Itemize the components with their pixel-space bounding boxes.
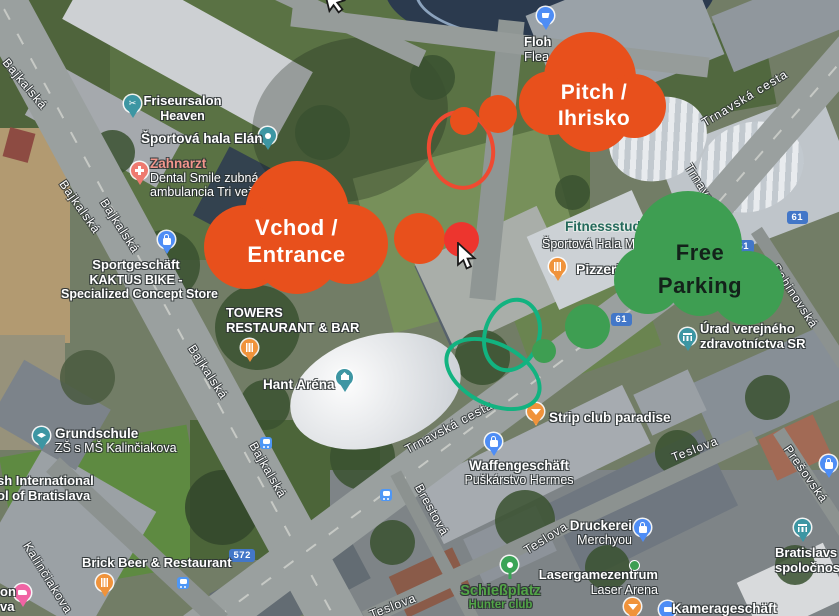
flea-market-pin[interactable] — [537, 7, 554, 24]
annotation-dot-orange — [394, 213, 445, 264]
bed-icon — [18, 590, 27, 595]
arena-pin[interactable] — [336, 369, 353, 386]
annotation-dot-green — [565, 304, 610, 349]
tree — [295, 105, 350, 160]
poi-label-sportova-hala[interactable]: Športová hala Elán — [141, 131, 263, 146]
scissors-icon: ✂ — [129, 99, 137, 108]
building — [633, 369, 706, 435]
shopping-bag-icon — [490, 440, 498, 447]
fork-knife-icon — [246, 343, 253, 352]
pizzeria-pin[interactable] — [549, 258, 566, 275]
annotation-dot-orange — [450, 107, 478, 135]
poi-label-waffengeschaeft[interactable]: Waffengeschäft Puškárstvo Hermes — [445, 458, 593, 487]
dentist-pin[interactable] — [131, 162, 148, 179]
school-pin[interactable] — [33, 427, 50, 444]
poi-label-urad[interactable]: Úrad verejného zdravotníctva SR — [700, 322, 805, 351]
annotation-dot-orange — [479, 95, 517, 133]
tree — [60, 350, 115, 405]
gun-shop-pin[interactable] — [485, 433, 502, 450]
poi-label-lasergame[interactable]: Lasergamezentrum Laser Arena — [537, 568, 658, 597]
poi-label-kamera[interactable]: Kamerageschäft — [672, 601, 777, 616]
poi-label-intl-school[interactable]: sh International ol of Bratislava — [0, 474, 94, 503]
poi-label-kaktus-bike[interactable]: Sportgeschäft KAKTUS BIKE - Specialized … — [61, 258, 211, 301]
poi-label-towers[interactable]: TOWERS RESTAURANT & BAR — [226, 306, 359, 335]
institution-pin[interactable] — [794, 519, 811, 536]
cocktail-icon — [628, 604, 638, 610]
route-badge-572: 572 — [229, 549, 255, 562]
shopping-cart-icon — [542, 13, 550, 18]
bank-columns-icon — [683, 333, 692, 341]
shopping-bag-icon — [639, 526, 647, 533]
cloud-text-pitch: Pitch / Ihrisko — [519, 80, 669, 132]
restaurant-pin[interactable] — [96, 574, 113, 591]
tree — [555, 175, 590, 210]
shopping-bag-icon — [825, 462, 833, 469]
shop-pin[interactable] — [820, 455, 837, 472]
camera-icon — [664, 607, 672, 612]
map-viewport[interactable]: Bajkalská Bajkalská Bajkalská Bajkalská … — [0, 0, 839, 616]
medical-cross-icon — [135, 166, 144, 175]
poi-label-brick-beer[interactable]: Brick Beer & Restaurant — [82, 556, 232, 571]
poi-label-druckerei[interactable]: Druckerei Merchyou — [552, 518, 632, 547]
cocktail-icon — [531, 409, 541, 415]
transit-stop-icon[interactable] — [177, 577, 189, 589]
annotation-cloud-pitch: Pitch / Ihrisko — [519, 32, 669, 154]
poi-label-pension[interactable]: on va — [0, 585, 16, 614]
bike-shop-pin[interactable] — [158, 231, 175, 248]
graduation-cap-icon — [37, 433, 46, 439]
cloud-text-parking: Free Parking — [612, 236, 788, 302]
annotation-cloud-entrance: Vchod / Entrance — [204, 161, 389, 295]
annotation-dot-green — [532, 339, 556, 363]
fork-knife-icon — [101, 578, 108, 587]
dot-icon — [265, 133, 271, 139]
bank-columns-icon — [798, 524, 807, 532]
poi-label-schiessplatz[interactable]: Schießplatz Hunter club — [448, 583, 553, 612]
hair-salon-pin[interactable]: ✂ — [124, 95, 141, 112]
tree — [370, 520, 415, 565]
tree — [745, 375, 790, 420]
cloud-text-entrance: Vchod / Entrance — [204, 214, 389, 268]
stadium-icon — [341, 375, 349, 380]
poi-label-friseursalon[interactable]: Friseursalon Heaven — [140, 94, 225, 123]
public-office-pin[interactable] — [679, 328, 696, 345]
mouse-cursor — [456, 242, 480, 270]
poi-label-strip-club[interactable]: Strip club paradise — [549, 410, 671, 425]
fork-knife-icon — [554, 262, 561, 271]
poi-label-hant-arena[interactable]: Hant Aréna — [263, 377, 335, 392]
annotation-cloud-parking: Free Parking — [612, 190, 788, 326]
shopping-bag-icon — [163, 238, 171, 245]
transit-stop-icon[interactable] — [380, 489, 392, 501]
night-club-pin[interactable] — [624, 598, 641, 615]
dot-icon — [507, 562, 513, 568]
lodging-pin[interactable] — [14, 584, 31, 601]
restaurant-pin[interactable] — [241, 339, 258, 356]
route-badge-61: 61 — [787, 211, 808, 224]
print-shop-pin[interactable] — [634, 519, 651, 536]
poi-label-bratislava-spol[interactable]: Bratislavs spoločnos — [775, 546, 839, 575]
poi-label-grundschule[interactable]: Grundschule ZŠ s MŠ Kalinčiakova — [55, 426, 177, 455]
shooting-range-pin[interactable] — [501, 556, 518, 573]
